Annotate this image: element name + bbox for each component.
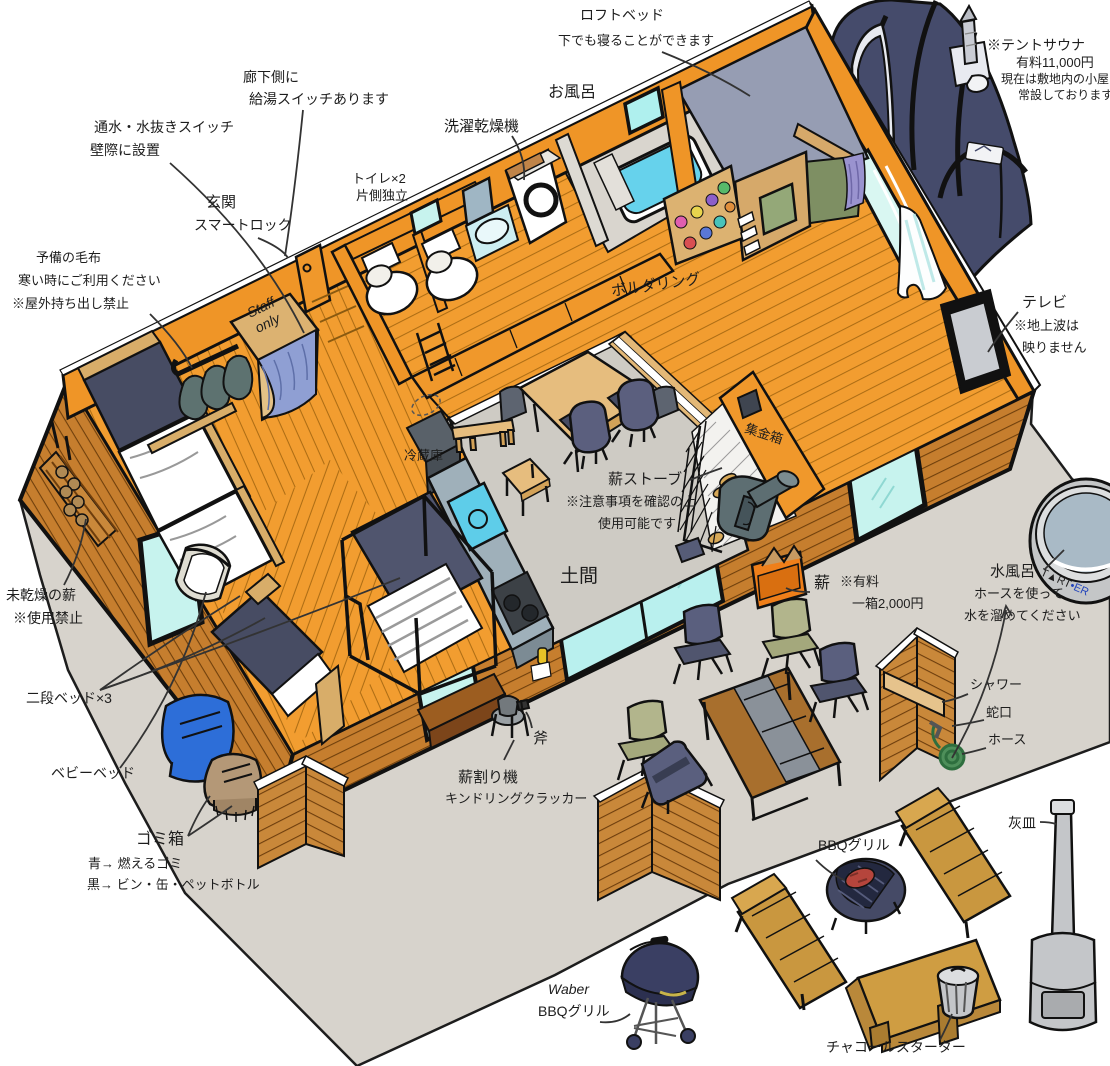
svg-text:斧: 斧 <box>533 730 548 747</box>
svg-text:玄関: 玄関 <box>206 194 236 211</box>
svg-text:※使用禁止: ※使用禁止 <box>13 610 83 626</box>
svg-text:未乾燥の薪: 未乾燥の薪 <box>6 587 76 603</box>
svg-text:ホース: ホース <box>988 732 1026 747</box>
svg-text:二段ベッド×3: 二段ベッド×3 <box>26 690 112 706</box>
svg-text:Waber: Waber <box>548 981 590 997</box>
svg-text:下でも寝ることができます: 下でも寝ることができます <box>558 33 714 48</box>
svg-text:黒→ ビン・缶・ペットボトル: 黒→ ビン・缶・ペットボトル <box>87 877 260 892</box>
svg-text:一箱2,000円: 一箱2,000円 <box>852 596 924 611</box>
svg-text:トイレ×2: トイレ×2 <box>352 171 406 186</box>
svg-text:有料11,000円: 有料11,000円 <box>1016 55 1094 70</box>
svg-text:※注意事項を確認の上: ※注意事項を確認の上 <box>566 494 696 509</box>
svg-text:使用可能です: 使用可能です <box>598 516 676 531</box>
svg-text:冷蔵庫: 冷蔵庫 <box>404 448 443 463</box>
svg-text:※有料: ※有料 <box>840 574 879 589</box>
svg-text:キンドリングクラッカー: キンドリングクラッカー <box>445 791 587 806</box>
svg-text:※屋外持ち出し禁止: ※屋外持ち出し禁止 <box>12 296 129 311</box>
svg-text:薪割り機: 薪割り機 <box>458 769 518 786</box>
svg-text:通水・水抜きスイッチ: 通水・水抜きスイッチ <box>94 119 234 135</box>
svg-text:常設しております: 常設しております <box>1018 87 1110 102</box>
svg-text:スマートロック: スマートロック <box>194 217 292 233</box>
svg-text:薪: 薪 <box>814 574 830 592</box>
svg-text:青→ 燃えるゴミ: 青→ 燃えるゴミ <box>88 856 182 871</box>
svg-text:ホースを使って: ホースを使って <box>974 586 1064 601</box>
svg-text:現在は敷地内の小屋に: 現在は敷地内の小屋に <box>1001 71 1110 86</box>
svg-text:蛇口: 蛇口 <box>986 705 1012 720</box>
svg-text:水を溜めてください: 水を溜めてください <box>964 608 1081 623</box>
svg-text:片側独立: 片側独立 <box>356 188 408 203</box>
svg-text:土間: 土間 <box>560 565 598 587</box>
svg-text:寒い時にご利用ください: 寒い時にご利用ください <box>18 273 161 288</box>
svg-text:ベビーベッド: ベビーベッド <box>51 765 135 781</box>
svg-text:薪ストーブ: 薪ストーブ <box>608 470 682 488</box>
svg-text:チャコールスターター: チャコールスターター <box>826 1039 966 1055</box>
svg-text:※地上波は: ※地上波は <box>1014 318 1079 333</box>
svg-text:※テントサウナ: ※テントサウナ <box>987 37 1085 53</box>
svg-text:映りません: 映りません <box>1022 340 1087 355</box>
svg-text:給湯スイッチあります: 給湯スイッチあります <box>249 91 389 107</box>
svg-text:予備の毛布: 予備の毛布 <box>36 250 101 265</box>
svg-text:ゴミ箱: ゴミ箱 <box>136 829 184 848</box>
svg-text:洗濯乾燥機: 洗濯乾燥機 <box>444 118 519 135</box>
svg-text:水風呂: 水風呂 <box>990 563 1035 580</box>
svg-text:壁際に設置: 壁際に設置 <box>90 142 160 158</box>
svg-text:ロフトベッド: ロフトベッド <box>580 7 664 23</box>
svg-text:BBQグリル: BBQグリル <box>538 1003 610 1019</box>
svg-text:BBQグリル: BBQグリル <box>818 837 890 853</box>
svg-text:灰皿: 灰皿 <box>1008 815 1036 831</box>
svg-text:テレビ: テレビ <box>1022 294 1067 311</box>
svg-text:廊下側に: 廊下側に <box>243 69 299 85</box>
svg-text:シャワー: シャワー <box>970 677 1022 692</box>
svg-text:お風呂: お風呂 <box>548 83 596 101</box>
